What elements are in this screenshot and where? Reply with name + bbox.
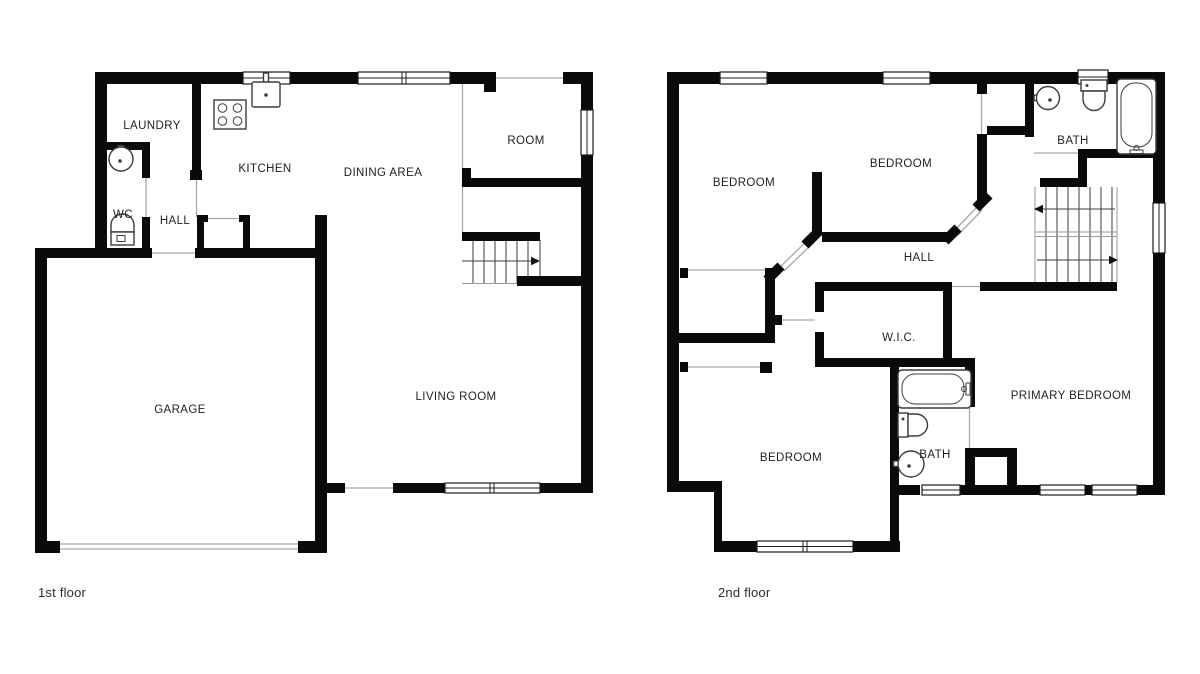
room-label-bedroom-nw: BEDROOM	[713, 177, 775, 189]
double-staircase-icon	[1034, 187, 1118, 282]
room-label-hall: HALL	[160, 215, 191, 227]
room-label-bath-lower: BATH	[919, 449, 950, 461]
window	[1153, 203, 1165, 253]
room-label-kitchen: KITCHEN	[238, 163, 291, 175]
window	[1092, 485, 1137, 495]
room-label-bedroom-ne: BEDROOM	[870, 158, 932, 170]
window	[358, 72, 450, 84]
floor-2-plan: BEDROOM BEDROOM BATH HALL W.I.C. PRIMARY…	[667, 70, 1165, 600]
window	[1040, 485, 1085, 495]
window	[581, 110, 593, 155]
toilet-icon	[1081, 80, 1107, 111]
room-label-bedroom-s: BEDROOM	[760, 452, 822, 464]
room-label-wc: WC	[113, 209, 133, 221]
room-label-dining-area: DINING AREA	[344, 167, 423, 179]
floor-1-caption: 1st floor	[38, 585, 87, 600]
floor-1-room-labels: LAUNDRY KITCHEN DINING AREA ROOM WC HALL…	[113, 120, 545, 416]
room-label-living-room: LIVING ROOM	[415, 391, 496, 403]
floor-2-walls	[667, 72, 1165, 552]
floor-2-windows	[720, 70, 1165, 552]
window	[922, 485, 960, 495]
window	[883, 72, 930, 84]
window	[720, 72, 767, 84]
floor-plan-svg: LAUNDRY KITCHEN DINING AREA ROOM WC HALL…	[0, 0, 1200, 674]
bathtub-icon	[898, 370, 971, 408]
room-label-primary-bedroom: PRIMARY BEDROOM	[1011, 390, 1132, 402]
window	[445, 483, 540, 493]
room-label-laundry: LAUNDRY	[123, 120, 181, 132]
floor-2-caption: 2nd floor	[718, 585, 771, 600]
stair-direction-arrow	[531, 257, 540, 265]
floor-plan-canvas: LAUNDRY KITCHEN DINING AREA ROOM WC HALL…	[0, 0, 1200, 674]
room-label-garage: GARAGE	[154, 404, 206, 416]
round-sink-icon	[1034, 87, 1060, 110]
room-label-room: ROOM	[507, 135, 544, 147]
room-label-hall: HALL	[904, 252, 935, 264]
bathtub-icon	[1117, 79, 1156, 154]
floor-1-plan: LAUNDRY KITCHEN DINING AREA ROOM WC HALL…	[35, 72, 593, 600]
window	[757, 541, 853, 552]
toilet-icon	[898, 413, 928, 437]
stove-icon	[214, 100, 246, 129]
room-label-bath-upper: BATH	[1057, 135, 1088, 147]
room-label-wic: W.I.C.	[882, 332, 916, 344]
